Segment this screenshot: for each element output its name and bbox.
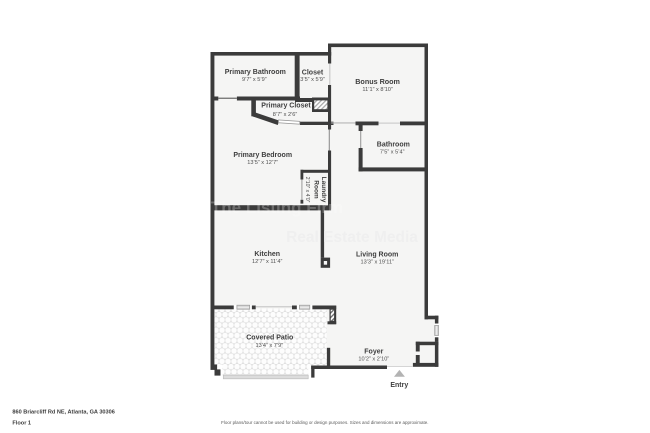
svg-text:3’5” x 5’9”: 3’5” x 5’9” [300,77,325,83]
svg-text:Floor 1: Floor 1 [12,420,31,426]
svg-text:8’7” x 2’6”: 8’7” x 2’6” [273,112,298,118]
svg-text:13’4” x 7’9”: 13’4” x 7’9” [255,343,283,349]
svg-text:13’5” x 12’7”: 13’5” x 12’7” [247,160,278,166]
svg-text:12’7” x 11’4”: 12’7” x 11’4” [252,259,283,265]
svg-text:Kitchen: Kitchen [254,251,280,258]
svg-text:Real Estate Media: Real Estate Media [286,229,418,246]
svg-text:Bathroom: Bathroom [377,141,410,148]
svg-text:Covered Patio: Covered Patio [246,335,293,342]
svg-text:Primary Bathroom: Primary Bathroom [225,69,286,76]
svg-text:10’2” x 2’10”: 10’2” x 2’10” [358,357,389,363]
svg-text:13’3” x 19’11”: 13’3” x 19’11” [360,259,394,265]
svg-text:Closet: Closet [302,70,324,77]
svg-text:Primary Bedroom: Primary Bedroom [233,152,292,159]
svg-text:Primary Closet: Primary Closet [261,103,311,110]
svg-text:Floor plans/tour cannot be use: Floor plans/tour cannot be used for buil… [221,420,428,425]
svg-text:Entry: Entry [390,382,408,389]
svg-text:11’1” x 8’10”: 11’1” x 8’10” [362,87,393,93]
svg-text:9’7” x 5’9”: 9’7” x 5’9” [242,77,267,83]
svg-text:Bonus Room: Bonus Room [355,77,400,86]
svg-text:Laundry: Laundry [320,177,327,203]
svg-text:860 Briarcliff Rd NE, Atlanta,: 860 Briarcliff Rd NE, Atlanta, GA 30306 [12,410,114,416]
svg-text:Foyer: Foyer [364,349,383,356]
svg-text:2’10” x 4’0”: 2’10” x 4’0” [304,177,310,203]
svg-text:Room: Room [312,180,319,199]
svg-text:7’5” x 5’4”: 7’5” x 5’4” [380,149,405,155]
svg-text:Living Room: Living Room [356,252,398,259]
